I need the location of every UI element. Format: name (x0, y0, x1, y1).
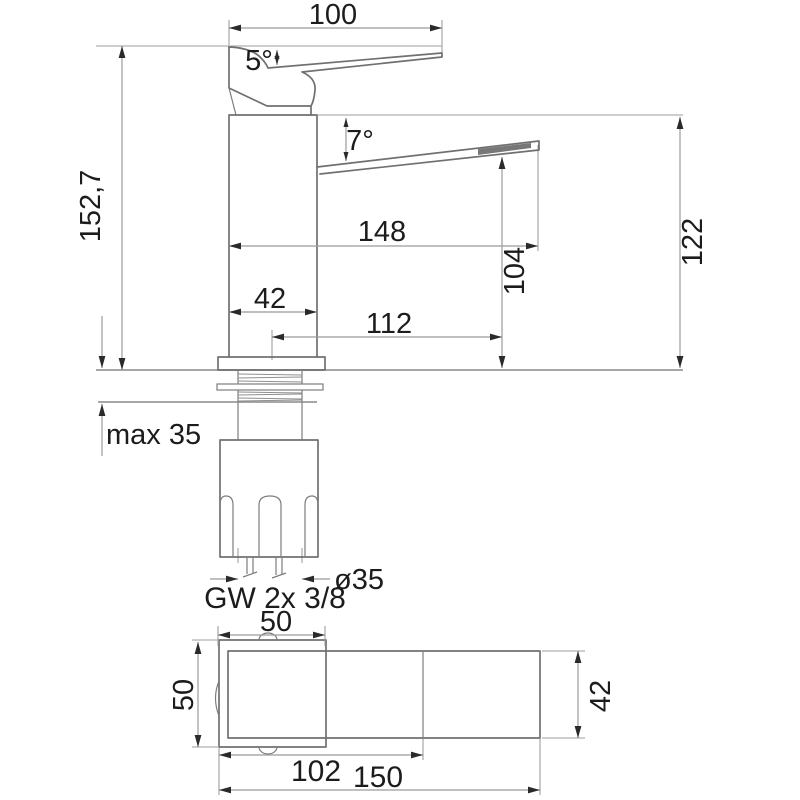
dim-label-plate-depth: 50 (168, 679, 200, 711)
dim-label-handle-length: 100 (309, 0, 357, 31)
dim-label-outlet-height: 104 (499, 247, 531, 295)
threaded-shank (217, 371, 323, 440)
dim-label-body-height: 122 (677, 218, 709, 266)
housing-body (220, 440, 318, 557)
dim-label-handle-angle: 5° (245, 45, 273, 77)
plan-outline (216, 633, 541, 754)
dim-label-plate-width: 50 (260, 606, 292, 638)
faucet-dimension-drawing: 100 5° 7° 152,7 148 122 104 42 112 max 3… (0, 0, 800, 800)
plan-view: 50 50 102 150 42 (168, 606, 617, 795)
body-column-outline (229, 115, 317, 357)
supply-hose-left (243, 557, 257, 577)
supply-hose-right (272, 557, 286, 578)
plan-lug-bottom (259, 747, 277, 754)
dim-label-body-length: 102 (291, 755, 341, 788)
dim-label-mount-thickness: max 35 (106, 419, 201, 451)
elevation-dimensions: 100 5° 7° 152,7 148 122 104 42 112 max 3… (75, 0, 709, 615)
supply-hoses (243, 557, 286, 578)
plan-dimensions: 50 50 102 150 42 (168, 606, 617, 794)
plan-body (228, 651, 540, 738)
elevation-reference-lines (96, 20, 683, 563)
dim-label-body-depth: 42 (585, 680, 617, 712)
dim-label-body-width: 42 (254, 283, 286, 315)
dim-label-outlet-reach: 112 (366, 308, 412, 340)
hose-channel-right (305, 496, 318, 557)
dim-label-spout-angle: 7° (346, 125, 374, 157)
handle-chamfer-line (229, 88, 236, 115)
mounting-washer (217, 384, 323, 390)
lower-housing (220, 440, 318, 557)
technical-drawing-canvas: 100 5° 7° 152,7 148 122 104 42 112 max 3… (0, 0, 800, 800)
hose-channel-center (259, 496, 281, 557)
hose-channel-left (220, 496, 233, 557)
plan-mounting-plate (219, 640, 326, 747)
dim-label-total-height: 152,7 (75, 170, 107, 243)
elevation-view: 100 5° 7° 152,7 148 122 104 42 112 max 3… (75, 0, 709, 615)
dim-label-total-length: 150 (353, 761, 403, 794)
dim-label-spout-reach: 148 (358, 216, 406, 248)
